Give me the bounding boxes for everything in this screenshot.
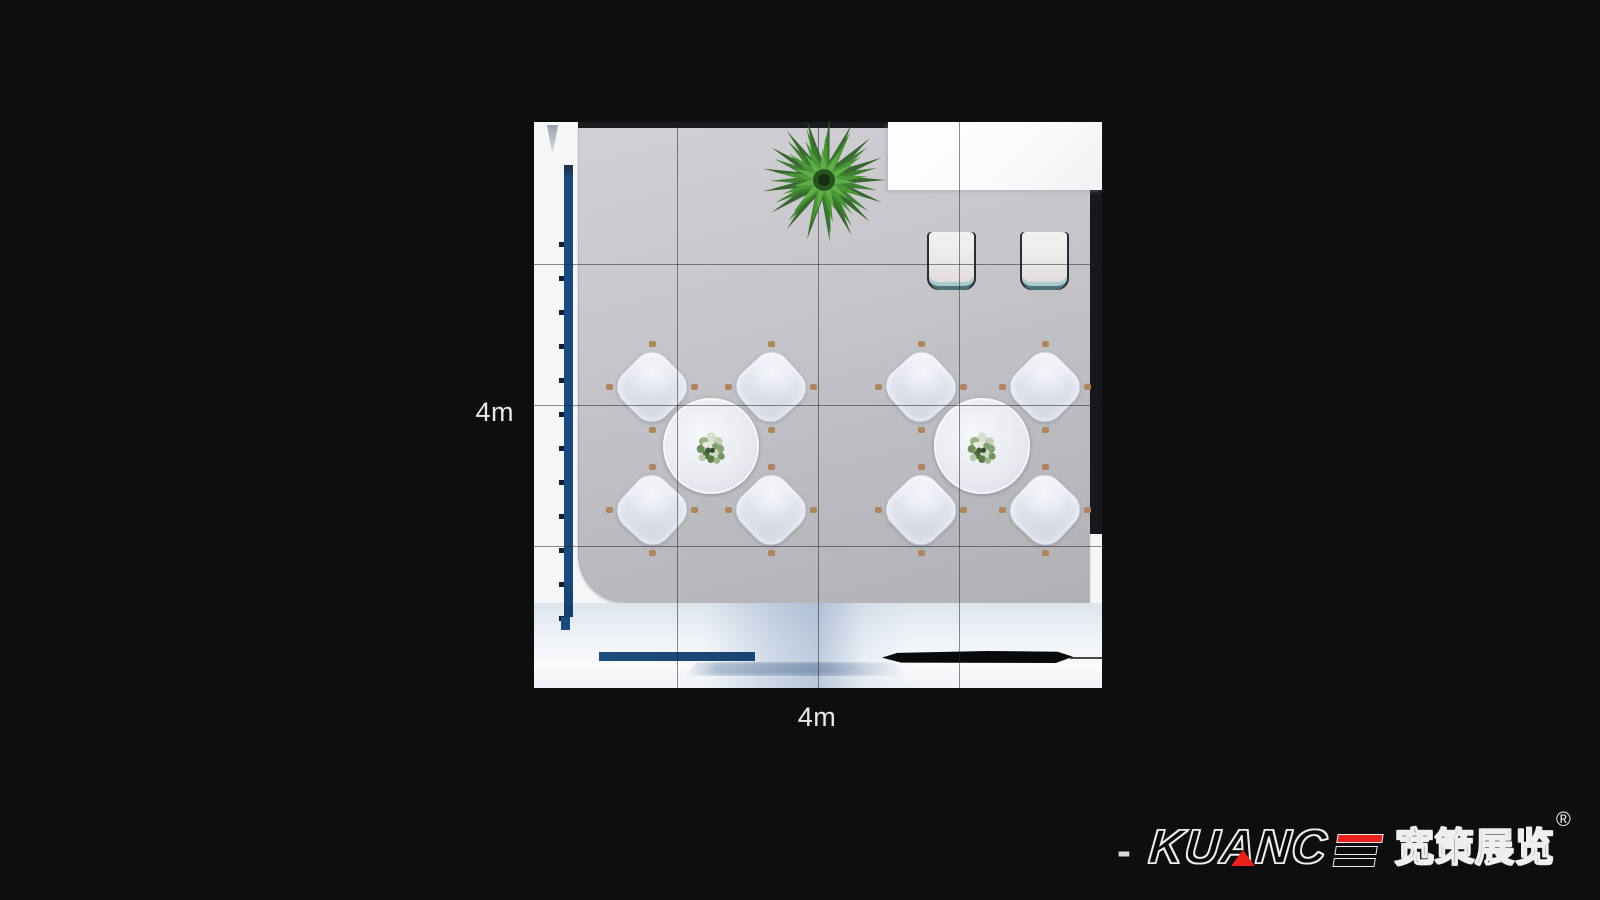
logo-e-bar-red xyxy=(1336,834,1383,843)
grid-line-horizontal xyxy=(534,405,1102,406)
chair-leg xyxy=(810,507,817,513)
stool xyxy=(927,232,976,290)
booth-floor-plan xyxy=(534,122,1102,688)
dimension-label-height: 4m xyxy=(450,398,514,428)
stool xyxy=(1020,232,1069,290)
grid-line-horizontal xyxy=(534,264,1102,265)
chair-leg xyxy=(606,384,613,390)
dimension-label-width: 4m xyxy=(785,703,849,733)
corner-detail xyxy=(547,125,558,151)
floor-shadow xyxy=(684,662,906,676)
chair-leg xyxy=(725,384,732,390)
blue-display-wall xyxy=(564,165,573,617)
chair-leg xyxy=(649,464,656,470)
chair-leg xyxy=(999,384,1006,390)
reception-counter xyxy=(888,122,1102,190)
chair-leg xyxy=(1084,507,1091,513)
chair-leg xyxy=(1042,464,1049,470)
chair-leg xyxy=(918,550,925,556)
chair-leg xyxy=(960,384,967,390)
display-wall-ticks xyxy=(559,242,564,622)
plant-center-core xyxy=(818,174,830,186)
logo-chinese-name: 宽策展览 xyxy=(1395,829,1555,868)
logo-dash: - xyxy=(1117,830,1131,872)
chair-leg xyxy=(918,427,925,433)
chair-leg xyxy=(810,384,817,390)
page-background: { "dimensions": { "width_label": "4m", "… xyxy=(0,0,1600,900)
chair-leg xyxy=(768,464,775,470)
display-wall-foot xyxy=(561,617,570,630)
chair-leg xyxy=(918,464,925,470)
chair-leg xyxy=(875,507,882,513)
chair-leg xyxy=(768,427,775,433)
chair-leg xyxy=(768,550,775,556)
chair-leg xyxy=(1042,550,1049,556)
chair-leg xyxy=(1084,384,1091,390)
chair-leg xyxy=(691,507,698,513)
chair-leg xyxy=(725,507,732,513)
chair-leg xyxy=(918,341,925,347)
chair-leg xyxy=(649,341,656,347)
chair-leg xyxy=(875,384,882,390)
chair-leg xyxy=(1042,341,1049,347)
flower-bouquet xyxy=(963,427,1001,465)
flower-bouquet xyxy=(692,427,730,465)
brand-logo: - KUANC 宽策展览 ® xyxy=(1103,810,1595,882)
registered-trademark-icon: ® xyxy=(1556,810,1571,830)
chair-leg xyxy=(649,427,656,433)
chair-leg xyxy=(999,507,1006,513)
side-wall xyxy=(1090,190,1102,534)
black-screen-bar xyxy=(882,651,1073,663)
chair-leg xyxy=(1042,427,1049,433)
chair-leg xyxy=(768,341,775,347)
logo-letter-e xyxy=(1332,834,1383,868)
potted-palm-plant xyxy=(760,116,888,244)
screen-edge-line xyxy=(1070,657,1102,659)
grid-line-horizontal xyxy=(534,546,1102,547)
chair-leg xyxy=(649,550,656,556)
chair-leg xyxy=(960,507,967,513)
chair-leg xyxy=(606,507,613,513)
logo-e-bar xyxy=(1332,858,1375,867)
logo-e-bar xyxy=(1334,846,1377,855)
chair-leg xyxy=(691,384,698,390)
